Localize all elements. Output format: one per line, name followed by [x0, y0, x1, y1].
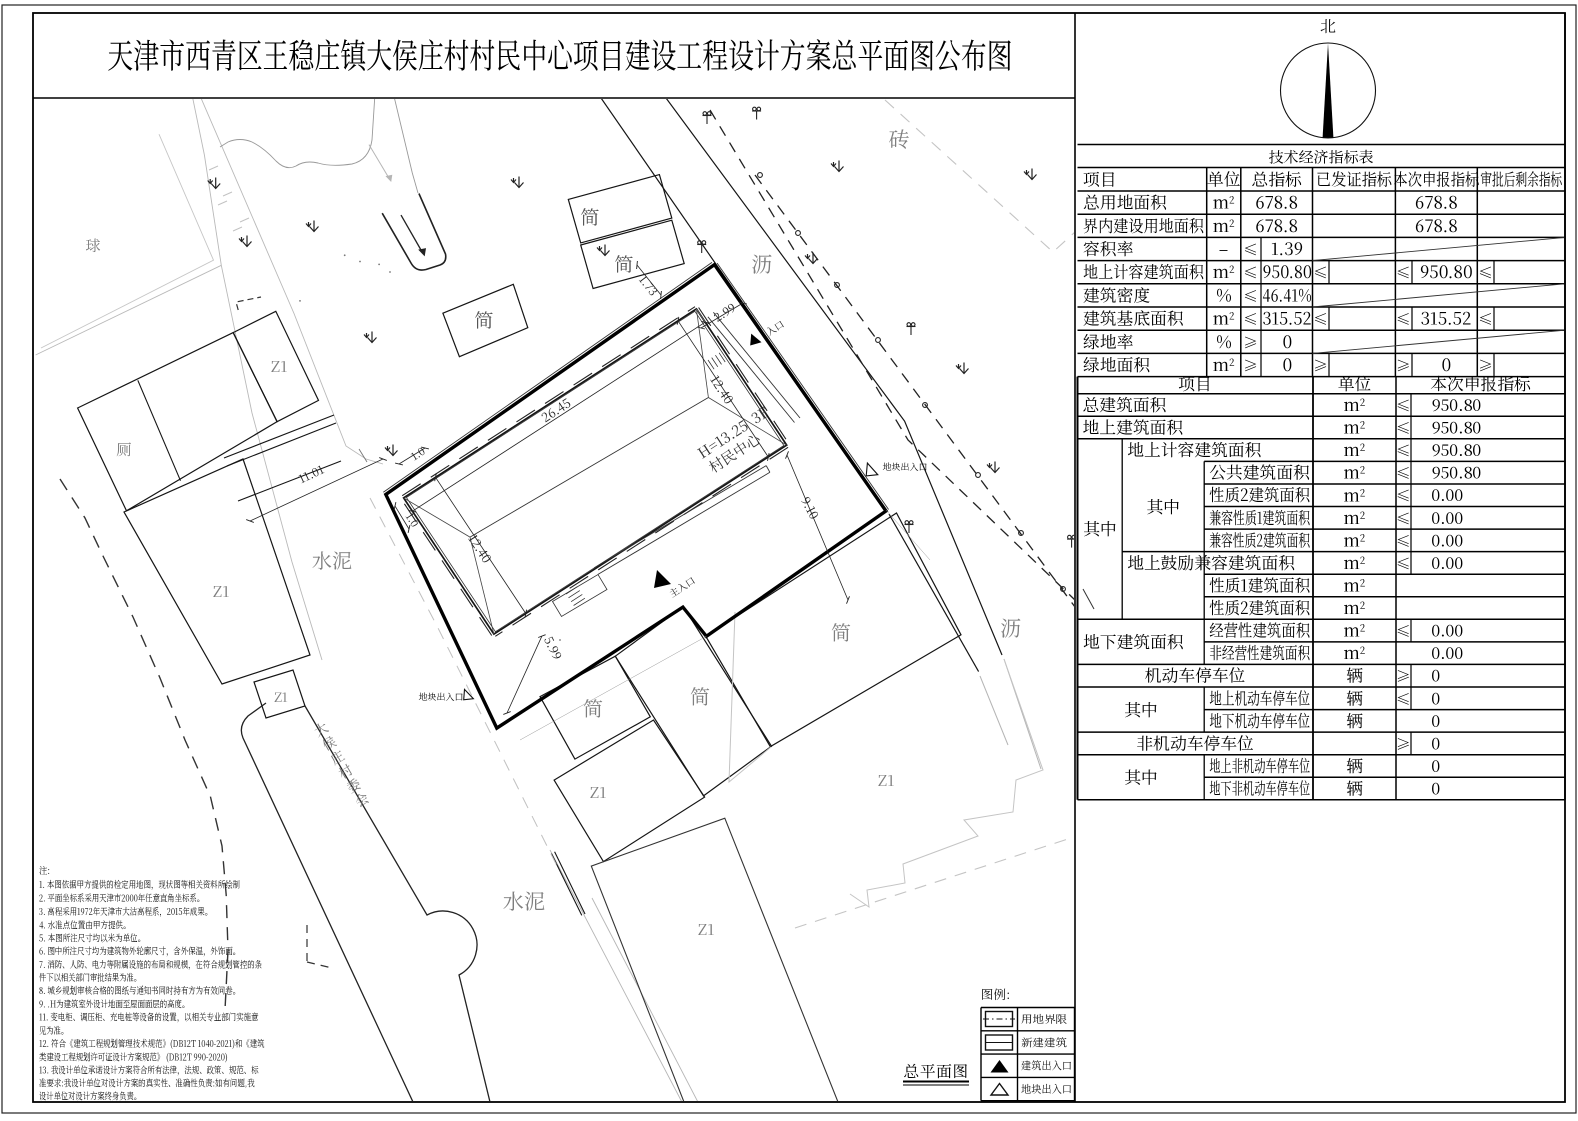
svg-text:辆: 辆	[1346, 708, 1363, 732]
svg-text:地块出入口: 地块出入口	[882, 460, 927, 473]
svg-text:类建设工程规划许可证设计方案规范》 (DB12T 990-2: 类建设工程规划许可证设计方案规范》 (DB12T 990-2020)	[39, 1049, 228, 1063]
svg-text:技术经济指标表: 技术经济指标表	[1268, 147, 1373, 168]
svg-text:性质2建筑面积: 性质2建筑面积	[1209, 482, 1310, 506]
svg-text:地下非机动车停车位: 地下非机动车停车位	[1209, 776, 1310, 800]
svg-text:沥: 沥	[1000, 613, 1021, 643]
svg-text:1. 本图依据甲方提供的检定用地图，现状图等相关资料所绘制: 1. 本图依据甲方提供的检定用地图，现状图等相关资料所绘制	[39, 877, 240, 891]
svg-text:0.00: 0.00	[1432, 528, 1464, 551]
svg-text:水泥: 水泥	[312, 545, 352, 574]
svg-text:总用地面积: 总用地面积	[1083, 190, 1167, 214]
svg-text:总指标: 总指标	[1251, 167, 1302, 191]
svg-text:地上计容建筑面积: 地上计容建筑面积	[1083, 259, 1204, 283]
svg-text:见为准。: 见为准。	[39, 1023, 68, 1037]
svg-text:0: 0	[1432, 709, 1441, 732]
svg-text:总建筑面积: 总建筑面积	[1083, 392, 1167, 416]
svg-text:公共建筑面积: 公共建筑面积	[1209, 460, 1310, 484]
svg-text:8. 城乡规划审核合格的图纸与通知书同时持有方为有效问卷。: 8. 城乡规划审核合格的图纸与通知书同时持有方为有效问卷。	[39, 983, 240, 997]
svg-text:≤: ≤	[1396, 463, 1411, 484]
svg-text:地上计容建筑面积: 地上计容建筑面积	[1127, 437, 1261, 461]
svg-text:辆: 辆	[1346, 663, 1363, 687]
svg-text:用地界限: 用地界限	[1021, 1012, 1067, 1027]
svg-text:Z1: Z1	[274, 687, 288, 706]
svg-text:项目: 项目	[1178, 371, 1212, 395]
svg-text:地上非机动车停车位: 地上非机动车停车位	[1209, 753, 1310, 777]
svg-text:总平面图: 总平面图	[903, 1059, 968, 1082]
svg-text:辆: 辆	[1346, 753, 1363, 777]
svg-text:≤: ≤	[1478, 309, 1493, 330]
svg-text:≤: ≤	[1396, 530, 1411, 551]
svg-text:本次申报指标: 本次申报指标	[1393, 167, 1479, 191]
svg-text:≤: ≤	[1396, 440, 1411, 461]
svg-text:兼容性质1建筑面积: 兼容性质1建筑面积	[1209, 505, 1310, 529]
svg-text:建筑密度: 建筑密度	[1083, 282, 1150, 306]
svg-text:绿地率: 绿地率	[1083, 329, 1134, 353]
svg-text:地上建筑面积: 地上建筑面积	[1083, 415, 1184, 439]
svg-text:简: 简	[583, 693, 603, 722]
svg-text:天津市西青区王稳庄镇大侯庄村村民中心项目建设工程设计方案总平: 天津市西青区王稳庄镇大侯庄村村民中心项目建设工程设计方案总平面图公布图	[108, 29, 1013, 78]
svg-text:北: 北	[1320, 14, 1336, 37]
svg-text:设计单位对设计方案终身负责。: 设计单位对设计方案终身负责。	[39, 1089, 141, 1103]
svg-text:≤: ≤	[1396, 485, 1411, 506]
svg-text:678.8: 678.8	[1255, 213, 1298, 237]
svg-text:砖: 砖	[889, 124, 910, 154]
svg-text:≥: ≥	[1396, 355, 1411, 376]
svg-text:1.39: 1.39	[1271, 236, 1303, 260]
svg-text:其中: 其中	[1146, 494, 1180, 518]
svg-text:地上鼓励兼容建筑面积: 地上鼓励兼容建筑面积	[1127, 550, 1295, 574]
svg-text:地块出入口: 地块出入口	[418, 690, 463, 703]
svg-text:≤: ≤	[1478, 262, 1493, 283]
svg-text:厕: 厕	[116, 439, 131, 460]
svg-text:≤: ≤	[1396, 688, 1411, 709]
svg-text:Z1: Z1	[698, 919, 714, 940]
svg-text:地下机动车停车位: 地下机动车停车位	[1209, 708, 1310, 732]
svg-text:678.8: 678.8	[1415, 190, 1458, 214]
svg-text:审批后剩余指标: 审批后剩余指标	[1480, 167, 1562, 191]
svg-text:≤: ≤	[1243, 285, 1258, 306]
svg-text:678.8: 678.8	[1415, 213, 1458, 237]
svg-text:非机动车停车位: 非机动车停车位	[1136, 730, 1254, 754]
svg-text:950.80: 950.80	[1432, 461, 1482, 484]
svg-text:950.80: 950.80	[1432, 393, 1482, 416]
svg-text:46.41%: 46.41%	[1263, 282, 1312, 306]
svg-text:0: 0	[1432, 686, 1441, 709]
svg-text:非经营性建筑面积: 非经营性建筑面积	[1209, 640, 1310, 664]
svg-text:9. .H为建筑室外设计地面至屋面面层的高度。: 9. .H为建筑室外设计地面至屋面面层的高度。	[39, 997, 189, 1011]
svg-text:地块出入口: 地块出入口	[1021, 1082, 1072, 1097]
svg-text:7. 消防、人防、电力等附属设施的布局和规模，在符合规划管控: 7. 消防、人防、电力等附属设施的布局和规模，在符合规划管控的条	[39, 957, 262, 971]
svg-text:≤: ≤	[1313, 262, 1328, 283]
svg-text:315.52: 315.52	[1263, 306, 1312, 330]
svg-text:件下以相关部门审批结果为准。: 件下以相关部门审批结果为准。	[38, 970, 141, 984]
svg-text:建筑出入口: 建筑出入口	[1021, 1059, 1072, 1074]
svg-text:0.00: 0.00	[1432, 619, 1464, 642]
svg-text:≤: ≤	[1396, 553, 1411, 574]
svg-text:≤: ≤	[1313, 309, 1328, 330]
svg-text:简: 简	[831, 617, 851, 646]
svg-text:辆: 辆	[1346, 776, 1363, 800]
svg-text:≤: ≤	[1396, 621, 1411, 642]
svg-text:水泥: 水泥	[503, 886, 546, 916]
svg-text:简: 简	[690, 681, 710, 710]
svg-text:678.8: 678.8	[1255, 190, 1298, 214]
svg-text:球: 球	[85, 235, 100, 256]
svg-text:绿地面积: 绿地面积	[1083, 352, 1150, 376]
svg-text:建筑基底面积: 建筑基底面积	[1083, 306, 1184, 330]
svg-text:0: 0	[1432, 731, 1441, 754]
svg-text:%: %	[1216, 282, 1232, 306]
svg-text:950.80: 950.80	[1432, 416, 1482, 439]
svg-text:6. 图中所注尺寸均为建筑物外轮廓尺寸，含外保温，外饰面。: 6. 图中所注尺寸均为建筑物外轮廓尺寸，含外保温，外饰面。	[39, 944, 240, 958]
svg-text:准要求:我设计单位对设计方案的真实性、准确性负责:如有问题,: 准要求:我设计单位对设计方案的真实性、准确性负责:如有问题,我	[39, 1076, 255, 1090]
svg-text:13. 我设计单位承诺设计方案符合所有法律，法规、政策、规范: 13. 我设计单位承诺设计方案符合所有法律，法规、政策、规范、标	[39, 1062, 259, 1076]
svg-text:≤: ≤	[1243, 239, 1258, 260]
svg-text:≤: ≤	[1396, 309, 1411, 330]
svg-text:兼容性质2建筑面积: 兼容性质2建筑面积	[1209, 527, 1310, 551]
svg-text:性质1建筑面积: 性质1建筑面积	[1209, 573, 1310, 597]
svg-text:≥: ≥	[1243, 355, 1258, 376]
svg-text:0: 0	[1432, 664, 1441, 687]
svg-text:简: 简	[580, 203, 599, 230]
svg-text:其中: 其中	[1083, 516, 1117, 540]
svg-text:简: 简	[474, 306, 493, 333]
svg-text:地下建筑面积: 地下建筑面积	[1083, 629, 1184, 653]
svg-text:≥: ≥	[1396, 666, 1411, 687]
svg-text:950.80: 950.80	[1432, 438, 1482, 461]
svg-text:容积率: 容积率	[1083, 236, 1134, 260]
svg-text:经营性建筑面积: 经营性建筑面积	[1209, 618, 1310, 642]
svg-text:已发证指标: 已发证指标	[1316, 167, 1392, 191]
svg-text:≥: ≥	[1396, 733, 1411, 754]
svg-text:界内建设用地面积: 界内建设用地面积	[1083, 213, 1204, 237]
svg-text:≤: ≤	[1396, 418, 1411, 439]
svg-text:Z1: Z1	[271, 356, 287, 377]
svg-text:辆: 辆	[1346, 685, 1363, 709]
svg-text:950.80: 950.80	[1263, 259, 1312, 283]
svg-text:11. 变电柜、调压柜、充电桩等设备的设置，以相关专业部门实: 11. 变电柜、调压柜、充电桩等设备的设置，以相关专业部门实施意	[39, 1010, 259, 1024]
svg-text:950.80: 950.80	[1420, 259, 1472, 283]
svg-text:0.00: 0.00	[1432, 641, 1464, 664]
svg-text:新建建筑: 新建建筑	[1021, 1035, 1067, 1050]
svg-text:Z1: Z1	[878, 770, 894, 791]
svg-text:–: –	[1219, 236, 1228, 260]
svg-text:0.00: 0.00	[1432, 551, 1464, 574]
svg-text:4. 水准点位置由甲方提供。: 4. 水准点位置由甲方提供。	[39, 917, 131, 931]
svg-text:地上机动车停车位: 地上机动车停车位	[1209, 685, 1310, 709]
svg-text:≤: ≤	[1243, 309, 1258, 330]
svg-text:0.00: 0.00	[1432, 483, 1464, 506]
svg-text:≤: ≤	[1243, 262, 1258, 283]
svg-text:本次申报指标: 本次申报指标	[1430, 371, 1531, 395]
svg-text:0.00: 0.00	[1432, 506, 1464, 529]
svg-text:2. 平面坐标系采用天津市2000年任意直角坐标系。: 2. 平面坐标系采用天津市2000年任意直角坐标系。	[39, 890, 204, 904]
svg-text:≤: ≤	[1396, 262, 1411, 283]
svg-text:5. 本图所注尺寸均以米为单位。: 5. 本图所注尺寸均以米为单位。	[39, 930, 145, 944]
svg-text:其中: 其中	[1124, 697, 1158, 721]
svg-text:12. 符合《建筑工程规划管理技术规范》(DB12T 104: 12. 符合《建筑工程规划管理技术规范》(DB12T 1040-2021)和《建…	[39, 1036, 265, 1050]
svg-text:%: %	[1216, 329, 1232, 353]
svg-text:图例:: 图例:	[981, 985, 1010, 1003]
svg-text:315.52: 315.52	[1421, 306, 1472, 330]
svg-text:简: 简	[614, 250, 633, 277]
svg-text:单位: 单位	[1207, 167, 1241, 191]
svg-text:0: 0	[1432, 777, 1441, 800]
svg-text:其中: 其中	[1124, 764, 1158, 788]
svg-text:性质2建筑面积: 性质2建筑面积	[1209, 595, 1310, 619]
svg-text:≥: ≥	[1313, 355, 1328, 376]
svg-text:Z1: Z1	[590, 782, 606, 803]
svg-text:≤: ≤	[1396, 395, 1411, 416]
svg-text:≤: ≤	[1396, 508, 1411, 529]
svg-text:Z1: Z1	[213, 581, 229, 602]
svg-text:≥: ≥	[1243, 332, 1258, 353]
svg-text:0: 0	[1432, 754, 1441, 777]
svg-text:沥: 沥	[751, 249, 772, 279]
svg-text:3. 高程采用1972年天津市大沽高程系，2015年成果。: 3. 高程采用1972年天津市大沽高程系，2015年成果。	[39, 904, 212, 918]
svg-text:机动车停车位: 机动车停车位	[1145, 663, 1246, 687]
svg-text:项目: 项目	[1083, 167, 1117, 191]
svg-text:注:: 注:	[39, 863, 50, 877]
svg-text:0: 0	[1282, 352, 1291, 376]
svg-text:0: 0	[1282, 329, 1291, 353]
